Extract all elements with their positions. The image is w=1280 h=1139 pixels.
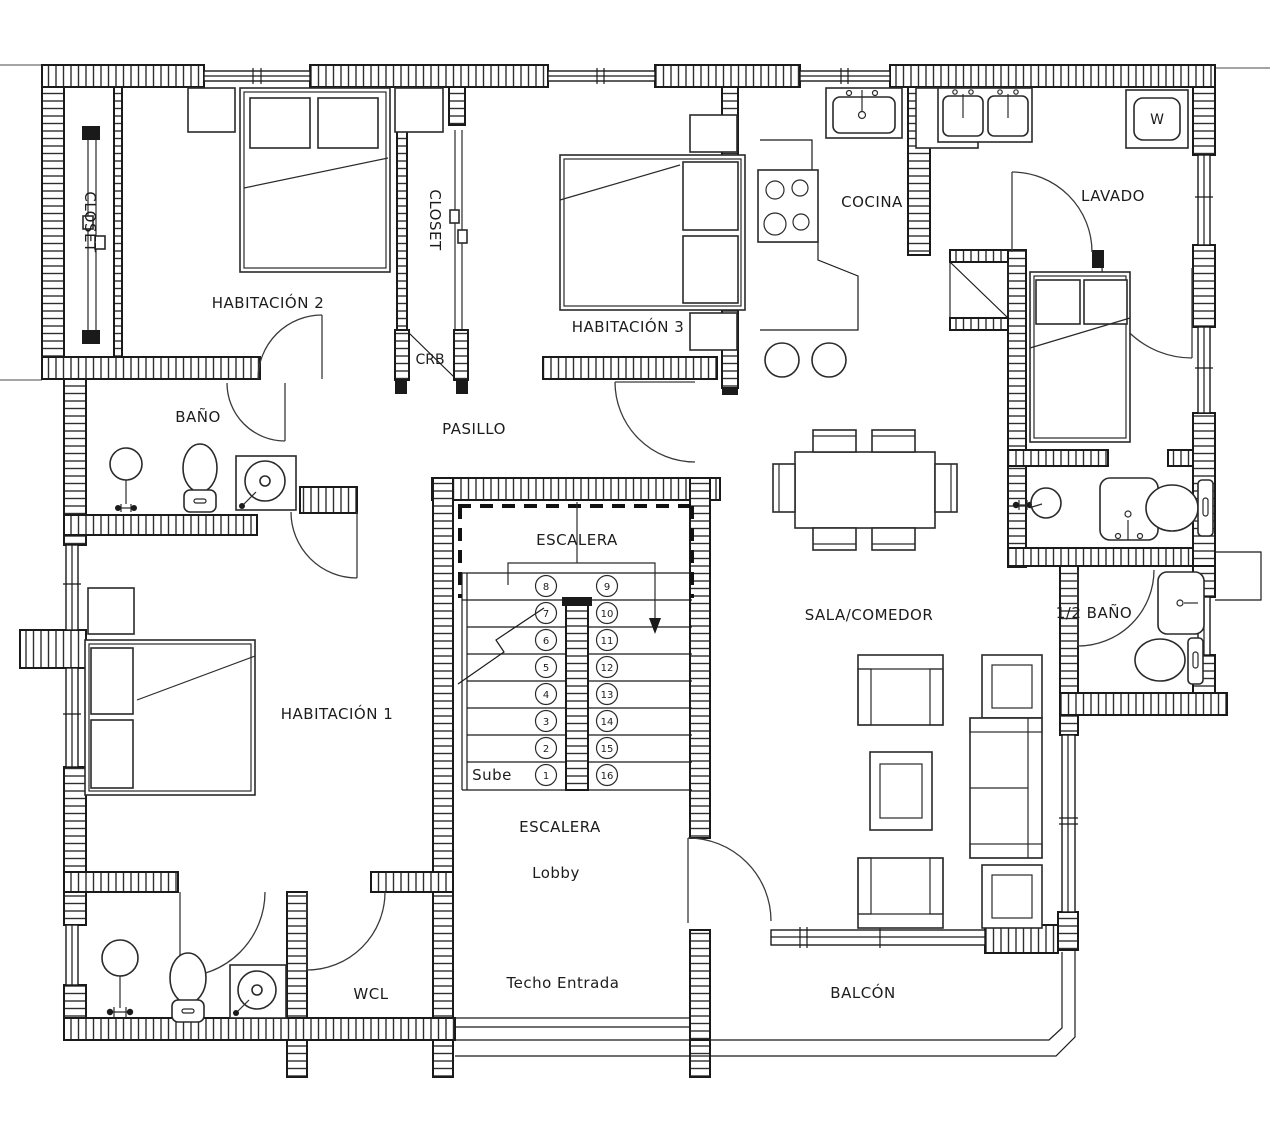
kitchen-sink-icon xyxy=(826,88,902,138)
chair-icon xyxy=(813,430,856,452)
toilet-icon xyxy=(1135,638,1203,684)
bed-habitacion1 xyxy=(85,640,255,795)
label-wcl: WCL xyxy=(353,985,388,1003)
living-set xyxy=(858,655,1042,928)
svg-text:3: 3 xyxy=(543,717,549,728)
armchair-icon xyxy=(858,655,943,725)
window xyxy=(63,545,81,630)
window xyxy=(1059,735,1078,912)
svg-text:8: 8 xyxy=(543,582,549,593)
window xyxy=(63,668,81,767)
shower-icon xyxy=(236,456,296,510)
door-habitacion3 xyxy=(615,382,695,462)
coffee-table-icon xyxy=(870,752,932,830)
label-closet-2: CLOSET xyxy=(426,189,444,251)
washer-icon: W xyxy=(1126,90,1188,148)
armchair-icon xyxy=(858,858,943,928)
duct-shaft xyxy=(950,250,1008,330)
svg-text:6: 6 xyxy=(543,636,549,647)
svg-text:16: 16 xyxy=(601,771,614,782)
stool-icon xyxy=(765,343,846,377)
svg-text:2: 2 xyxy=(543,744,549,755)
entry-roof-outline xyxy=(455,1018,690,1027)
sofa-icon xyxy=(970,718,1042,858)
svg-text:10: 10 xyxy=(601,609,614,620)
washer-label: W xyxy=(1150,112,1164,128)
nightstand-icon xyxy=(88,588,134,634)
chair-icon xyxy=(872,430,915,452)
label-sala-comedor: SALA/COMEDOR xyxy=(805,606,934,624)
svg-text:5: 5 xyxy=(543,663,549,674)
toilet-icon xyxy=(183,444,217,512)
window xyxy=(204,68,310,84)
window xyxy=(1195,327,1213,413)
svg-text:7: 7 xyxy=(543,609,549,620)
label-medio-bano: 1/2 BAÑO xyxy=(1056,603,1133,622)
window xyxy=(771,927,985,948)
bottom-bath-fixtures xyxy=(102,940,286,1022)
svg-text:9: 9 xyxy=(604,582,610,593)
floor-plan-drawing: W xyxy=(0,0,1280,1139)
label-habitacion-1: HABITACIÓN 1 xyxy=(281,704,394,723)
laundry-sink-icon xyxy=(938,88,1032,142)
label-cocina: COCINA xyxy=(841,193,903,211)
label-balcon: BALCÓN xyxy=(830,983,895,1002)
svg-text:12: 12 xyxy=(601,663,614,674)
window xyxy=(548,68,655,84)
sink-icon xyxy=(110,448,142,512)
service-bath-fixtures xyxy=(1013,478,1213,540)
dining-set xyxy=(773,430,957,550)
balcony-railing xyxy=(455,950,1075,1056)
side-ledge xyxy=(1215,552,1261,600)
chair-icon xyxy=(935,464,957,512)
svg-text:1: 1 xyxy=(543,771,549,782)
label-pasillo: PASILLO xyxy=(442,420,506,438)
window xyxy=(1195,155,1213,245)
sink-icon xyxy=(1158,572,1204,634)
bano-fixtures xyxy=(110,444,296,512)
stove-icon xyxy=(758,170,818,242)
door-bano xyxy=(227,383,285,441)
chair-icon xyxy=(813,528,856,550)
label-sube: Sube xyxy=(472,766,512,784)
window xyxy=(66,925,78,985)
label-crb: CRB xyxy=(415,352,444,368)
toilet-icon xyxy=(170,953,206,1022)
svg-text:15: 15 xyxy=(601,744,614,755)
sink-icon xyxy=(102,940,138,1017)
svg-text:4: 4 xyxy=(543,690,549,701)
door-habitacion1 xyxy=(291,512,357,578)
side-table-icon xyxy=(982,655,1042,718)
window xyxy=(800,68,890,84)
label-lobby: Lobby xyxy=(532,864,580,882)
svg-text:14: 14 xyxy=(601,717,614,728)
label-habitacion-2: HABITACIÓN 2 xyxy=(212,293,325,312)
label-escalera-inferior: ESCALERA xyxy=(519,818,601,836)
shower-icon xyxy=(230,965,286,1018)
bed-service-room xyxy=(1030,272,1130,442)
bed-habitacion3 xyxy=(560,155,745,310)
label-techo-entrada: Techo Entrada xyxy=(506,974,620,992)
label-closet-1: CLOSET xyxy=(81,191,99,253)
door-lavado xyxy=(1012,172,1092,252)
door-balcon xyxy=(688,838,771,923)
label-habitacion-3: HABITACIÓN 3 xyxy=(572,317,685,336)
svg-text:13: 13 xyxy=(601,690,614,701)
label-lavado: LAVADO xyxy=(1081,187,1145,205)
medio-bano-fixtures xyxy=(1135,572,1204,684)
label-bano: BAÑO xyxy=(175,407,221,426)
chair-icon xyxy=(773,464,795,512)
bed-habitacion2 xyxy=(240,88,390,272)
side-table-icon xyxy=(982,865,1042,928)
label-escalera-superior: ESCALERA xyxy=(536,531,618,549)
door-wcl xyxy=(307,892,385,970)
chair-icon xyxy=(872,528,915,550)
door-habitacion2 xyxy=(258,315,322,379)
floor-plan-page: W xyxy=(0,0,1280,1139)
svg-text:11: 11 xyxy=(601,636,614,647)
